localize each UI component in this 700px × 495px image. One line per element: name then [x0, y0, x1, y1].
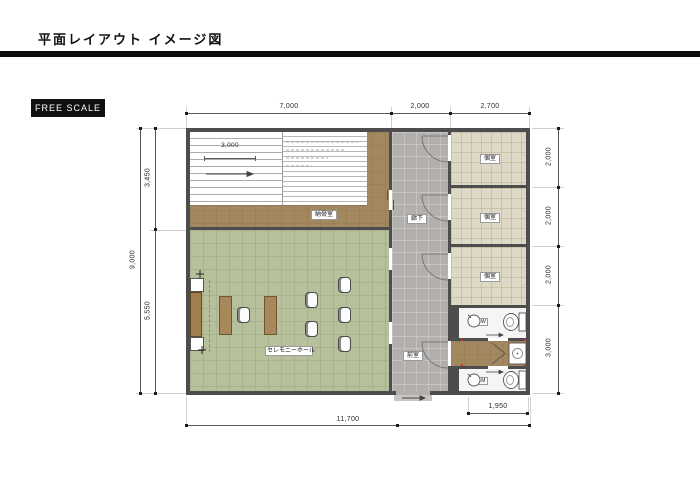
dim-right-2: 2,000	[546, 186, 553, 246]
dim-left-lower: 5,550	[145, 281, 152, 341]
shelf-step-lines	[286, 142, 358, 166]
dim-tick	[396, 424, 399, 427]
dim-right-4: 3,000	[546, 318, 553, 378]
dim-top-3: 2,700	[460, 103, 520, 110]
door-swing-anteroom	[422, 342, 448, 368]
dim-tick	[557, 186, 560, 189]
toilet-icon	[504, 313, 527, 331]
sink-icon	[468, 374, 480, 386]
sink-icon	[468, 315, 480, 327]
dim-tick	[557, 304, 560, 307]
dim-top-1: 7,000	[259, 103, 319, 110]
dim-line-left-total	[140, 128, 141, 393]
ext-line	[136, 128, 186, 129]
dim-line-right	[558, 128, 559, 393]
entrance-arrow	[402, 396, 425, 400]
dim-tick	[557, 127, 560, 130]
dim-tick	[139, 392, 142, 395]
door-swing-private-3	[422, 254, 448, 280]
dim-tick	[154, 127, 157, 130]
dim-tick	[390, 112, 393, 115]
dim-right-1: 2,000	[546, 127, 553, 187]
dim-line-left-inner	[155, 128, 156, 393]
dim-tick	[154, 228, 157, 231]
dim-right-3: 2,000	[546, 245, 553, 305]
dim-tick	[467, 412, 470, 415]
dim-tick	[449, 112, 452, 115]
dim-tick	[528, 424, 531, 427]
ext-line	[391, 107, 392, 128]
wc-door-arrow	[486, 333, 503, 337]
ext-line	[450, 107, 451, 128]
ext-line	[186, 107, 187, 128]
sliding-door-ossuary	[388, 190, 394, 210]
dim-tick	[557, 392, 560, 395]
dim-tick	[526, 412, 529, 415]
wc-door-arrow	[486, 370, 503, 374]
door-swing-private-2	[422, 195, 448, 221]
altar-marker	[196, 270, 206, 354]
dim-tick	[185, 112, 188, 115]
dim-tick	[139, 127, 142, 130]
dim-tick	[557, 245, 560, 248]
dim-tick	[528, 112, 531, 115]
ext-line	[529, 107, 530, 128]
dim-tick	[154, 392, 157, 395]
dim-left-upper: 3,450	[145, 148, 152, 208]
dim-left-total: 9,000	[130, 230, 137, 290]
dim-line-bottom-wc	[468, 413, 528, 414]
washbasin-icon	[509, 343, 526, 364]
dim-line-bottom-total	[186, 425, 530, 426]
dim-top-2: 2,000	[390, 103, 450, 110]
dim-bottom-total: 11,700	[318, 416, 378, 423]
double-door-icon	[492, 343, 505, 364]
door-swing-private-1	[422, 136, 448, 162]
dim-tick	[185, 424, 188, 427]
drawing-sheet: 平面レイアウト イメージ図 FREE SCALE	[0, 0, 700, 495]
toilet-icon	[504, 371, 527, 389]
dim-line-top	[186, 113, 530, 114]
dim-bottom-wc: 1,950	[468, 403, 528, 410]
ext-line	[136, 393, 186, 394]
flow-arrow	[206, 172, 253, 177]
